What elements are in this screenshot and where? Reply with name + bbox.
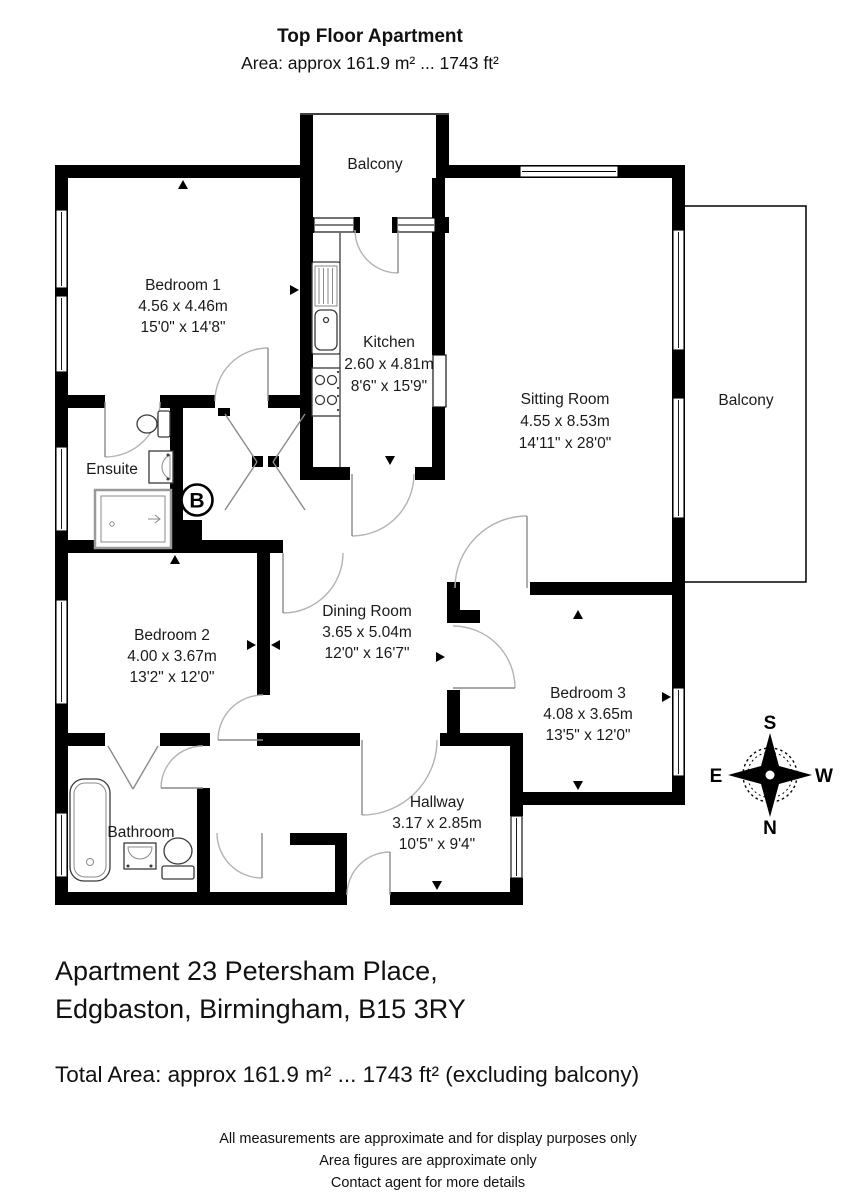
shower-icon <box>95 490 171 548</box>
room-label-bedroom1-imperial: 15'0" x 14'8" <box>140 319 225 336</box>
room-label-sitting-metric: 4.55 x 8.53m <box>520 413 610 430</box>
room-label-bedroom2-metric: 4.00 x 3.67m <box>127 648 217 665</box>
compass-west-label: W <box>815 766 833 787</box>
room-label-hallway-metric: 3.17 x 2.85m <box>392 815 482 832</box>
total-area: Total Area: approx 161.9 m² ... 1743 ft²… <box>55 1062 639 1088</box>
room-label-bedroom3-name: Bedroom 3 <box>550 685 626 702</box>
room-label-bedroom2-imperial: 13'2" x 12'0" <box>129 669 214 686</box>
room-label-balcony-top: Balcony <box>347 156 402 173</box>
address-line-1: Apartment 23 Petersham Place, <box>55 952 466 990</box>
boiler-mark: B <box>182 485 213 516</box>
measure-markers <box>170 180 671 890</box>
property-address: Apartment 23 Petersham Place, Edgbaston,… <box>55 952 466 1028</box>
room-label-sitting-imperial: 14'11" x 28'0" <box>519 435 611 452</box>
room-label-hallway-name: Hallway <box>410 794 465 811</box>
room-label-dining-name: Dining Room <box>322 603 412 620</box>
compass-east-label: E <box>710 766 723 787</box>
room-label-bathroom: Bathroom <box>107 824 174 841</box>
ensuite-toilet-icon <box>137 411 170 437</box>
room-label-kitchen-name: Kitchen <box>363 334 415 351</box>
bathtub-icon <box>70 779 110 881</box>
compass-north-label: N <box>763 818 777 839</box>
room-label-dining-metric: 3.65 x 5.04m <box>322 624 412 641</box>
boiler-label: B <box>189 490 204 513</box>
room-label-hallway-imperial: 10'5" x 9'4" <box>399 836 475 853</box>
kitchen-sink-icon <box>312 262 340 354</box>
bathroom-sink-icon <box>124 843 156 869</box>
disclaimer-line-2: Area figures are approximate only <box>0 1150 856 1172</box>
disclaimer-line-1: All measurements are approximate and for… <box>0 1128 856 1150</box>
compass-rose-icon: S N E W <box>710 713 833 839</box>
room-label-bedroom3-imperial: 13'5" x 12'0" <box>545 727 630 744</box>
address-line-2: Edgbaston, Birmingham, B15 3RY <box>55 990 466 1028</box>
floorplan-page: Top Floor Apartment Area: approx 161.9 m… <box>0 0 856 1200</box>
stove-icon <box>312 368 340 416</box>
ensuite-sink-icon <box>149 451 173 483</box>
room-label-sitting-name: Sitting Room <box>521 391 610 408</box>
room-label-kitchen-metric: 2.60 x 4.81m <box>344 356 434 373</box>
room-label-bedroom1-metric: 4.56 x 4.46m <box>138 298 228 315</box>
room-label-kitchen-imperial: 8'6" x 15'9" <box>351 378 427 395</box>
bathroom-toilet-icon <box>162 838 194 879</box>
compass-south-label: S <box>764 713 777 734</box>
room-label-bedroom1-name: Bedroom 1 <box>145 277 221 294</box>
room-label-balcony-right: Balcony <box>718 392 773 409</box>
room-label-dining-imperial: 12'0" x 16'7" <box>324 645 409 662</box>
disclaimer-line-3: Contact agent for more details <box>0 1172 856 1194</box>
room-label-bedroom2-name: Bedroom 2 <box>134 627 210 644</box>
room-label-bedroom3-metric: 4.08 x 3.65m <box>543 706 633 723</box>
disclaimer-block: All measurements are approximate and for… <box>0 1128 856 1194</box>
room-label-ensuite: Ensuite <box>86 461 138 478</box>
